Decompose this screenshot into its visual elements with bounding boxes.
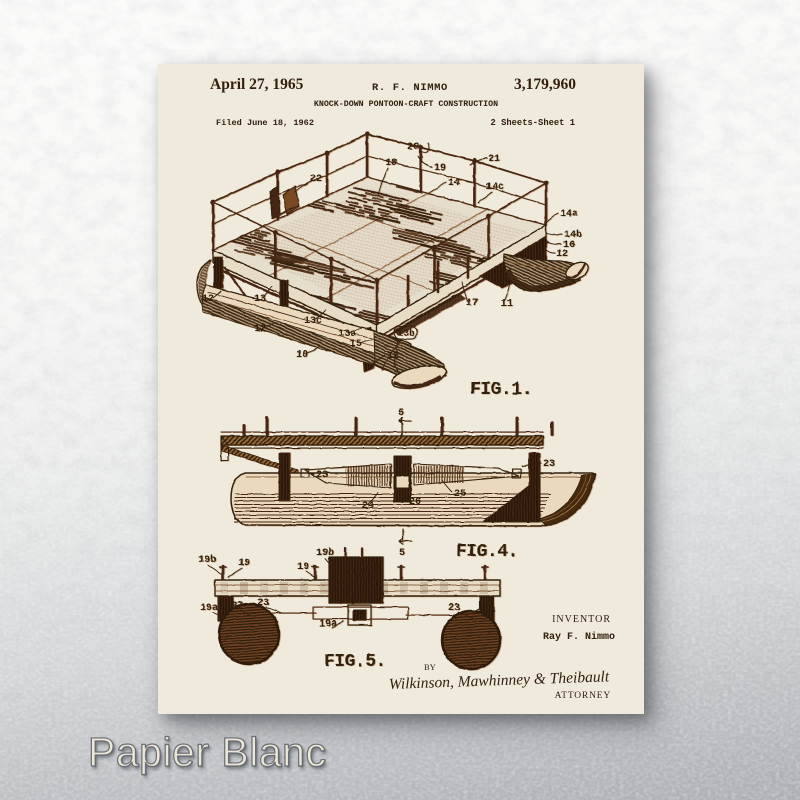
svg-text:ATTORNEY: ATTORNEY bbox=[555, 691, 611, 701]
svg-text:11: 11 bbox=[501, 299, 513, 310]
svg-text:14c: 14c bbox=[486, 182, 504, 193]
svg-text:23: 23 bbox=[316, 470, 328, 481]
svg-text:24: 24 bbox=[362, 501, 374, 512]
svg-text:Filed June 18, 1962: Filed June 18, 1962 bbox=[216, 118, 314, 128]
svg-text:INVENTOR: INVENTOR bbox=[552, 614, 611, 625]
svg-text:BY: BY bbox=[424, 662, 436, 672]
svg-text:19b: 19b bbox=[198, 554, 216, 566]
svg-text:FIG.4.: FIG.4. bbox=[456, 542, 518, 562]
svg-text:5: 5 bbox=[399, 548, 405, 559]
svg-text:25: 25 bbox=[454, 489, 466, 500]
svg-text:12: 12 bbox=[202, 294, 214, 305]
svg-text:20: 20 bbox=[407, 142, 419, 153]
svg-text:14: 14 bbox=[448, 178, 460, 189]
svg-text:19: 19 bbox=[434, 163, 446, 174]
svg-text:R. F. NIMMO: R. F. NIMMO bbox=[372, 82, 448, 94]
svg-text:13c: 13c bbox=[304, 316, 322, 327]
svg-text:18: 18 bbox=[385, 158, 397, 169]
svg-text:21: 21 bbox=[488, 154, 500, 165]
svg-text:12: 12 bbox=[254, 324, 266, 335]
svg-text:19: 19 bbox=[238, 558, 250, 569]
svg-text:14a: 14a bbox=[560, 209, 578, 220]
svg-text:10: 10 bbox=[296, 350, 308, 361]
svg-text:15: 15 bbox=[350, 339, 362, 350]
svg-text:26: 26 bbox=[409, 497, 421, 508]
svg-text:19a: 19a bbox=[200, 603, 218, 614]
svg-text:12: 12 bbox=[556, 249, 568, 260]
svg-text:Wilkinson, Mawhinney & Theibau: Wilkinson, Mawhinney & Theibault bbox=[389, 668, 611, 693]
svg-text:April 27, 1965: April 27, 1965 bbox=[210, 76, 304, 93]
svg-text:22: 22 bbox=[310, 174, 322, 185]
svg-text:FIG.5.: FIG.5. bbox=[324, 652, 386, 672]
svg-text:Ray F. Nimmo: Ray F. Nimmo bbox=[543, 631, 615, 643]
svg-text:23: 23 bbox=[543, 459, 555, 470]
svg-text:19a: 19a bbox=[319, 619, 337, 630]
svg-text:FIG.1.: FIG.1. bbox=[470, 380, 532, 400]
svg-text:13b: 13b bbox=[397, 328, 415, 340]
svg-text:12: 12 bbox=[387, 351, 399, 362]
svg-text:2 Sheets-Sheet 1: 2 Sheets-Sheet 1 bbox=[491, 118, 575, 128]
svg-text:17: 17 bbox=[466, 298, 478, 309]
svg-text:19b: 19b bbox=[316, 547, 334, 559]
svg-text:5: 5 bbox=[398, 408, 404, 419]
svg-text:3,179,960: 3,179,960 bbox=[514, 76, 576, 93]
svg-text:KNOCK-DOWN PONTOON-CRAFT CONST: KNOCK-DOWN PONTOON-CRAFT CONSTRUCTION bbox=[314, 100, 498, 109]
